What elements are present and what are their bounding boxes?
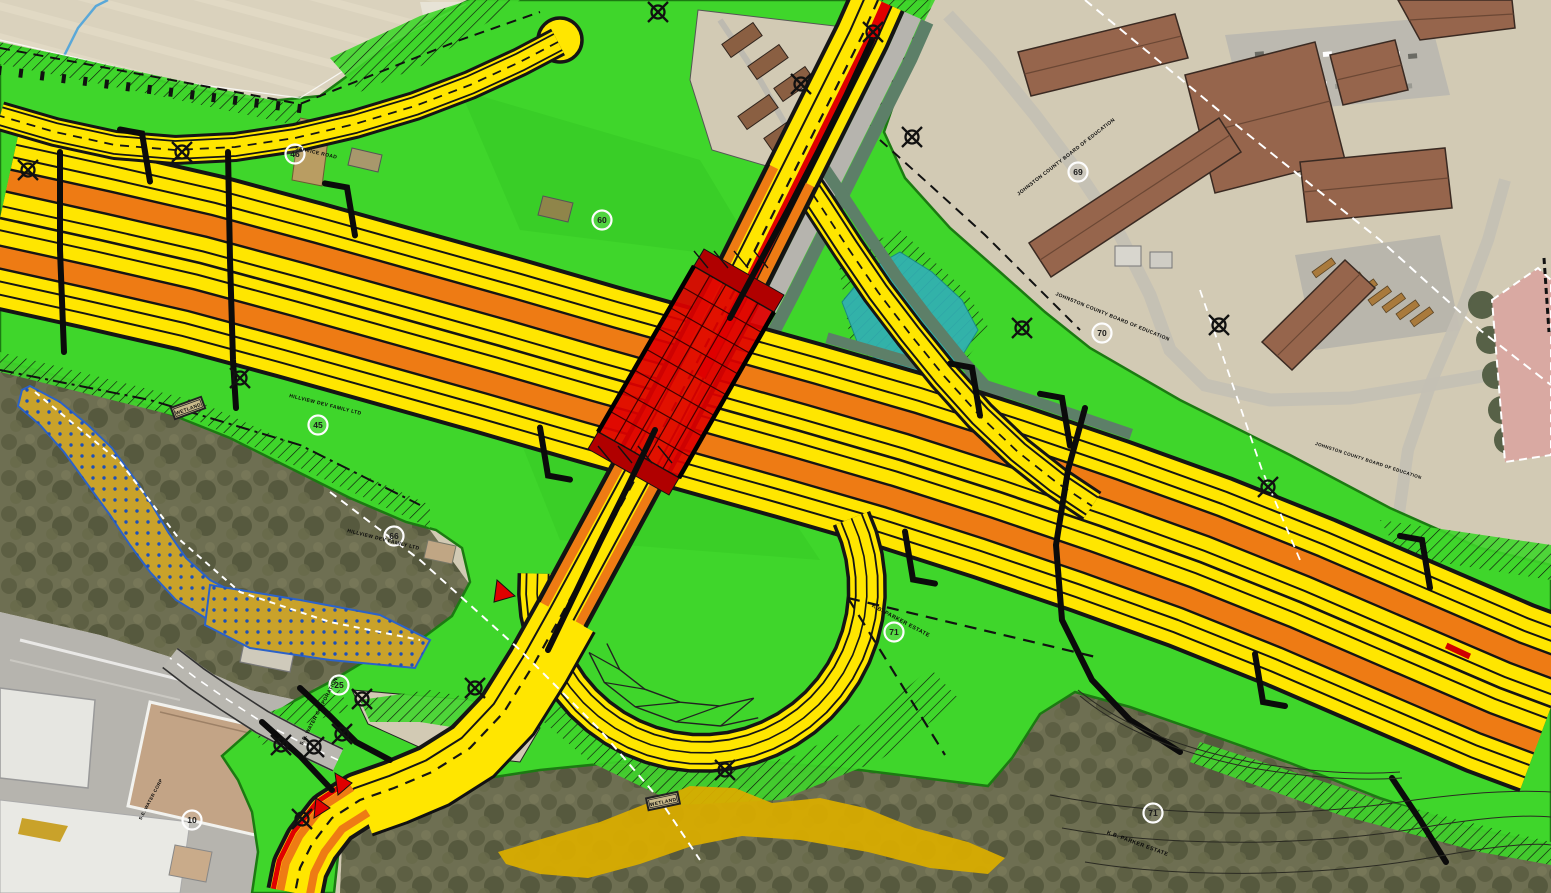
shed bbox=[1115, 246, 1141, 266]
parcel-number: 71 bbox=[1148, 808, 1158, 818]
parcel-number: 10 bbox=[187, 815, 197, 825]
utility-pole-icon bbox=[332, 724, 352, 744]
site-plan-map-stage: 46604566697071712510 JOHNSTON COUNTY BOA… bbox=[0, 0, 1551, 893]
utility-pole-icon bbox=[1012, 318, 1032, 338]
parcel-number: 71 bbox=[889, 627, 899, 637]
utility-pole-icon bbox=[863, 22, 883, 42]
parcel-number-bubble: 71 bbox=[1144, 804, 1163, 823]
parcel-number-bubble: 69 bbox=[1069, 163, 1088, 182]
utility-pole-icon bbox=[791, 74, 811, 94]
utility-pole-icon bbox=[902, 127, 922, 147]
construction-plan-map: 46604566697071712510 JOHNSTON COUNTY BOA… bbox=[0, 0, 1551, 893]
parcel-number-bubble: 10 bbox=[183, 811, 202, 830]
shed bbox=[1150, 252, 1172, 268]
utility-pole-icon bbox=[1258, 477, 1278, 497]
shed-tan bbox=[169, 845, 212, 882]
parcel-number-bubble: 45 bbox=[309, 416, 328, 435]
utility-pole-icon bbox=[292, 809, 312, 829]
utility-pole-icon bbox=[352, 689, 372, 709]
utility-pole-icon bbox=[172, 142, 192, 162]
utility-pole-icon bbox=[230, 368, 250, 388]
utility-pole-icon bbox=[18, 160, 38, 180]
parcel-number: 69 bbox=[1073, 167, 1083, 177]
utility-pole-icon bbox=[271, 735, 291, 755]
parcel-number: 60 bbox=[597, 215, 607, 225]
utility-pole-icon bbox=[715, 760, 735, 780]
utility-pole-icon bbox=[1209, 315, 1229, 335]
parcel-number: 70 bbox=[1097, 328, 1107, 338]
utility-pole-icon bbox=[648, 2, 668, 22]
parcel-number-bubble: 71 bbox=[885, 623, 904, 642]
warehouse-white bbox=[0, 688, 95, 788]
parcel-number-bubble: 70 bbox=[1093, 324, 1112, 343]
parcel-number-bubble: 60 bbox=[593, 211, 612, 230]
parcel-number: 45 bbox=[313, 420, 323, 430]
utility-pole-icon bbox=[465, 678, 485, 698]
